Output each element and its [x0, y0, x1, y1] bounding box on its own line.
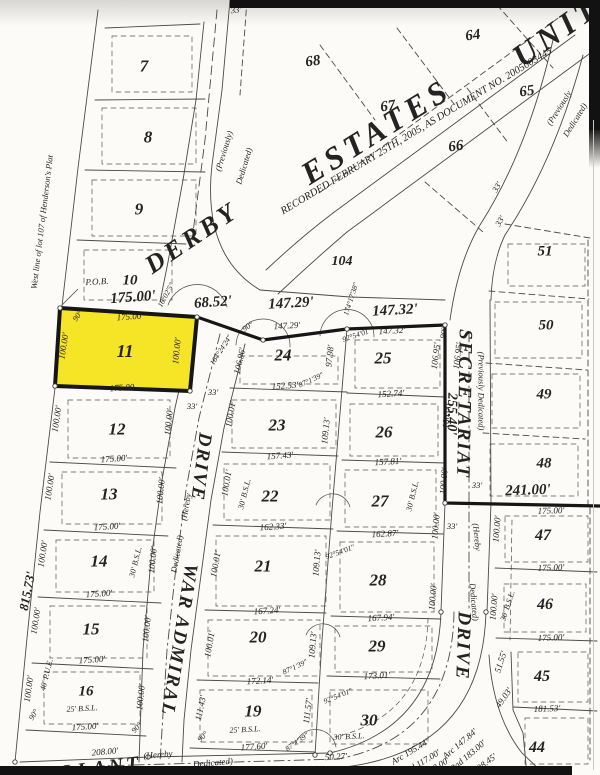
- lot-number-23: 23: [269, 417, 286, 434]
- measurement-68-52: 68.52': [194, 294, 233, 312]
- measurement-147-32-small: 147.32': [378, 326, 405, 336]
- measurement-177-60: 177.60': [240, 742, 267, 753]
- lot-number-16: 16: [79, 685, 94, 700]
- lot-number-26: 26: [376, 424, 393, 441]
- measurement-175-00-lot46: 175.00': [538, 563, 565, 573]
- lot-number-24: 24: [275, 347, 292, 364]
- lot-number-65: 65: [519, 84, 536, 101]
- lot-number-14: 14: [91, 553, 108, 570]
- pob-leader-line: [62, 289, 78, 305]
- measurement-175-00-main: 175.00': [110, 289, 156, 307]
- scan-edge-right: [589, 0, 600, 130]
- street-name-drive-secretariat: DRIVE: [452, 611, 473, 681]
- lot-number-51: 51: [538, 245, 553, 260]
- lot-number-68: 68: [305, 54, 322, 71]
- lot-number-66: 66: [448, 139, 465, 156]
- lot-number-44: 44: [529, 740, 545, 756]
- lot-number-12: 12: [109, 421, 126, 438]
- measurement-152-74: 152.74': [377, 389, 404, 399]
- lot-number-19: 19: [245, 703, 262, 720]
- measurement-162-87: 162.87': [371, 529, 398, 539]
- measurement-175-00-lot47: 175.00': [538, 506, 565, 516]
- scan-edge-right-fade: [589, 128, 600, 168]
- lot-number-29: 29: [369, 638, 386, 655]
- lot-number-28: 28: [370, 572, 387, 589]
- measurement-50-27: 50.27': [325, 752, 348, 762]
- plat-boundary-thick: [197, 317, 600, 506]
- lot-number-46: 46: [537, 597, 553, 613]
- note-previously-secretariat: (Previously Dedicated): [477, 352, 486, 431]
- measurement-33-sec3: 33': [472, 481, 482, 490]
- note-30-bsl-lot30: 30' B.S.L.: [333, 732, 364, 742]
- measurement-147-29-main: 147.29': [268, 295, 314, 312]
- note-hereby-secretariat-s: (Hereby: [472, 523, 483, 551]
- lot-number-9: 9: [135, 201, 144, 218]
- plat-map-page: 7891011121314151619202122232425262728293…: [0, 0, 600, 775]
- measurement-157-43: 157.43': [266, 451, 293, 462]
- lot-number-10: 10: [123, 274, 138, 289]
- measurement-167-94: 167.94': [367, 613, 394, 623]
- measurement-175-00-lot11-n: 175.00: [116, 312, 141, 323]
- lot-number-104: 104: [332, 255, 353, 269]
- lot-number-27: 27: [372, 493, 389, 510]
- measurement-147-32-main: 147.32': [372, 302, 418, 319]
- lot-number-25: 25: [375, 350, 392, 367]
- note-pob: P.O.B.: [85, 277, 109, 287]
- measurement-175-00-lot11-s: 175.00: [109, 383, 134, 394]
- lot-number-47: 47: [535, 528, 551, 544]
- measurement-241-00: 241.00': [505, 483, 551, 500]
- measurement-175-00-lot45: 175.00': [538, 633, 565, 643]
- scan-edge-bottom: [0, 766, 572, 775]
- lot-number-48: 48: [537, 457, 552, 472]
- note-dedicated-secretariat-s: Dedicated): [468, 583, 480, 621]
- lot-number-50: 50: [539, 319, 554, 334]
- note-25-bsl-lot19: 25' B.S.L.: [229, 725, 260, 735]
- scan-edge-top: [230, 0, 600, 8]
- measurement-33-sec4: 33': [447, 522, 457, 531]
- measurement-157-81: 157.81': [374, 457, 401, 467]
- lot-number-64: 64: [465, 28, 482, 45]
- measurement-173-01: 173.01': [363, 671, 390, 681]
- lot-number-21: 21: [255, 558, 272, 575]
- measurement-175-00-lot14: 175.00': [85, 589, 112, 600]
- measurement-167-24: 167.24': [253, 606, 280, 617]
- measurement-172-14: 172.14': [246, 676, 273, 687]
- measurement-175-00-lot15: 175.00': [78, 655, 105, 666]
- lot-number-8: 8: [144, 129, 153, 146]
- lot-number-22: 22: [262, 488, 279, 505]
- note-25-bsl-lot16: 25' B.S.L.: [66, 704, 97, 714]
- lot-number-20: 20: [250, 629, 267, 646]
- lot-number-30: 30: [361, 712, 378, 729]
- lot-number-45: 45: [534, 669, 550, 685]
- lot-number-49: 49: [537, 388, 552, 403]
- measurement-175-00-lot16: 175.00': [71, 722, 98, 733]
- lot-number-15: 15: [83, 621, 100, 638]
- paper-edge-line: [593, 120, 594, 770]
- lot-number-13: 13: [101, 486, 118, 503]
- secretariat-north-curve: [450, 40, 583, 320]
- measurement-33-wa2: 33': [187, 402, 197, 411]
- lot-number-11: 11: [116, 342, 133, 360]
- measurement-175-00-lot13: 175.00': [93, 522, 120, 533]
- measurement-181-53: 181.53': [534, 704, 561, 714]
- measurement-147-29-small: 147.29': [273, 321, 300, 331]
- measurement-33-wa1: 33': [208, 388, 218, 397]
- lot-number-7: 7: [140, 58, 149, 75]
- measurement-175-00-lot12: 175.00': [100, 454, 127, 465]
- measurement-152-53: 152.53': [271, 381, 298, 392]
- measurement-162-33: 162.33': [259, 522, 286, 533]
- derby-road-lines: [160, 0, 445, 302]
